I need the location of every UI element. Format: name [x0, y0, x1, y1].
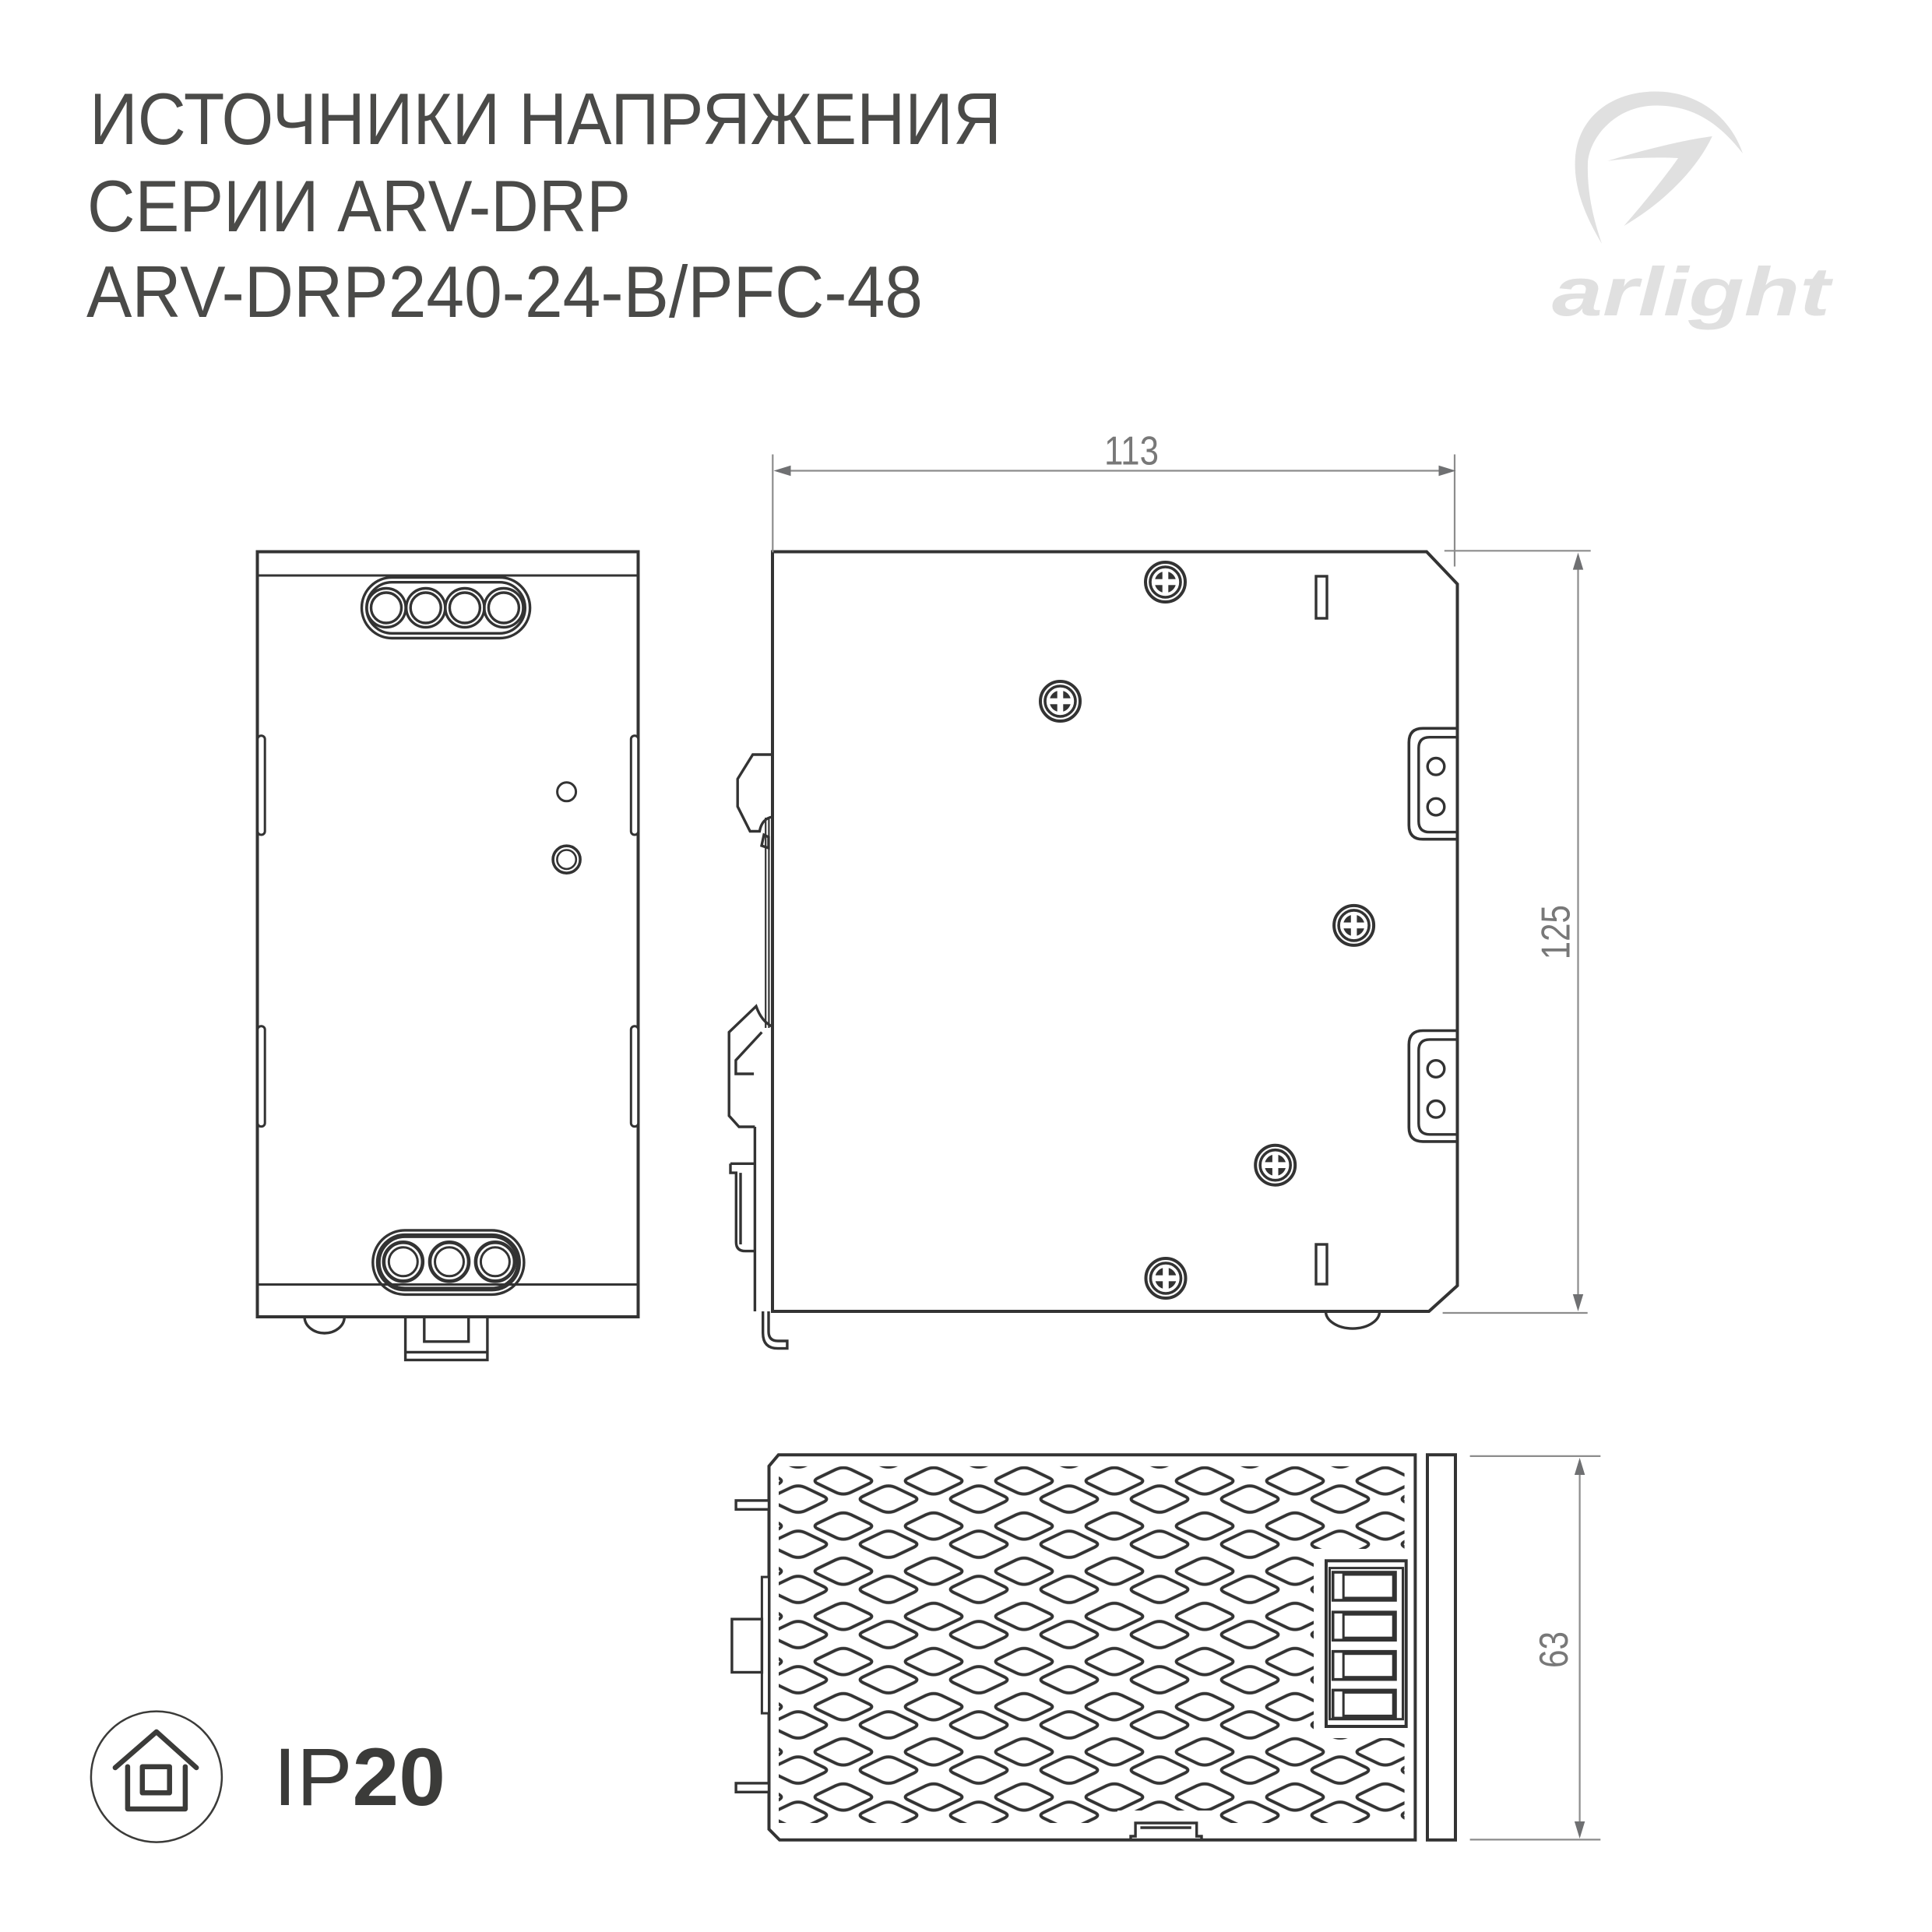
svg-text:63: 63 [1532, 1631, 1577, 1668]
svg-text:113: 113 [1104, 428, 1159, 473]
svg-text:125: 125 [1533, 905, 1578, 959]
svg-text:ИСТОЧНИКИ НАПРЯЖЕНИЯ: ИСТОЧНИКИ НАПРЯЖЕНИЯ [90, 78, 1001, 160]
svg-text:СЕРИИ ARV-DRP: СЕРИИ ARV-DRP [87, 165, 631, 247]
svg-text:ARV-DRP240-24-B/PFC-48: ARV-DRP240-24-B/PFC-48 [86, 251, 923, 333]
svg-text:IP20: IP20 [273, 1732, 445, 1823]
svg-text:arlight: arlight [1552, 253, 1834, 330]
